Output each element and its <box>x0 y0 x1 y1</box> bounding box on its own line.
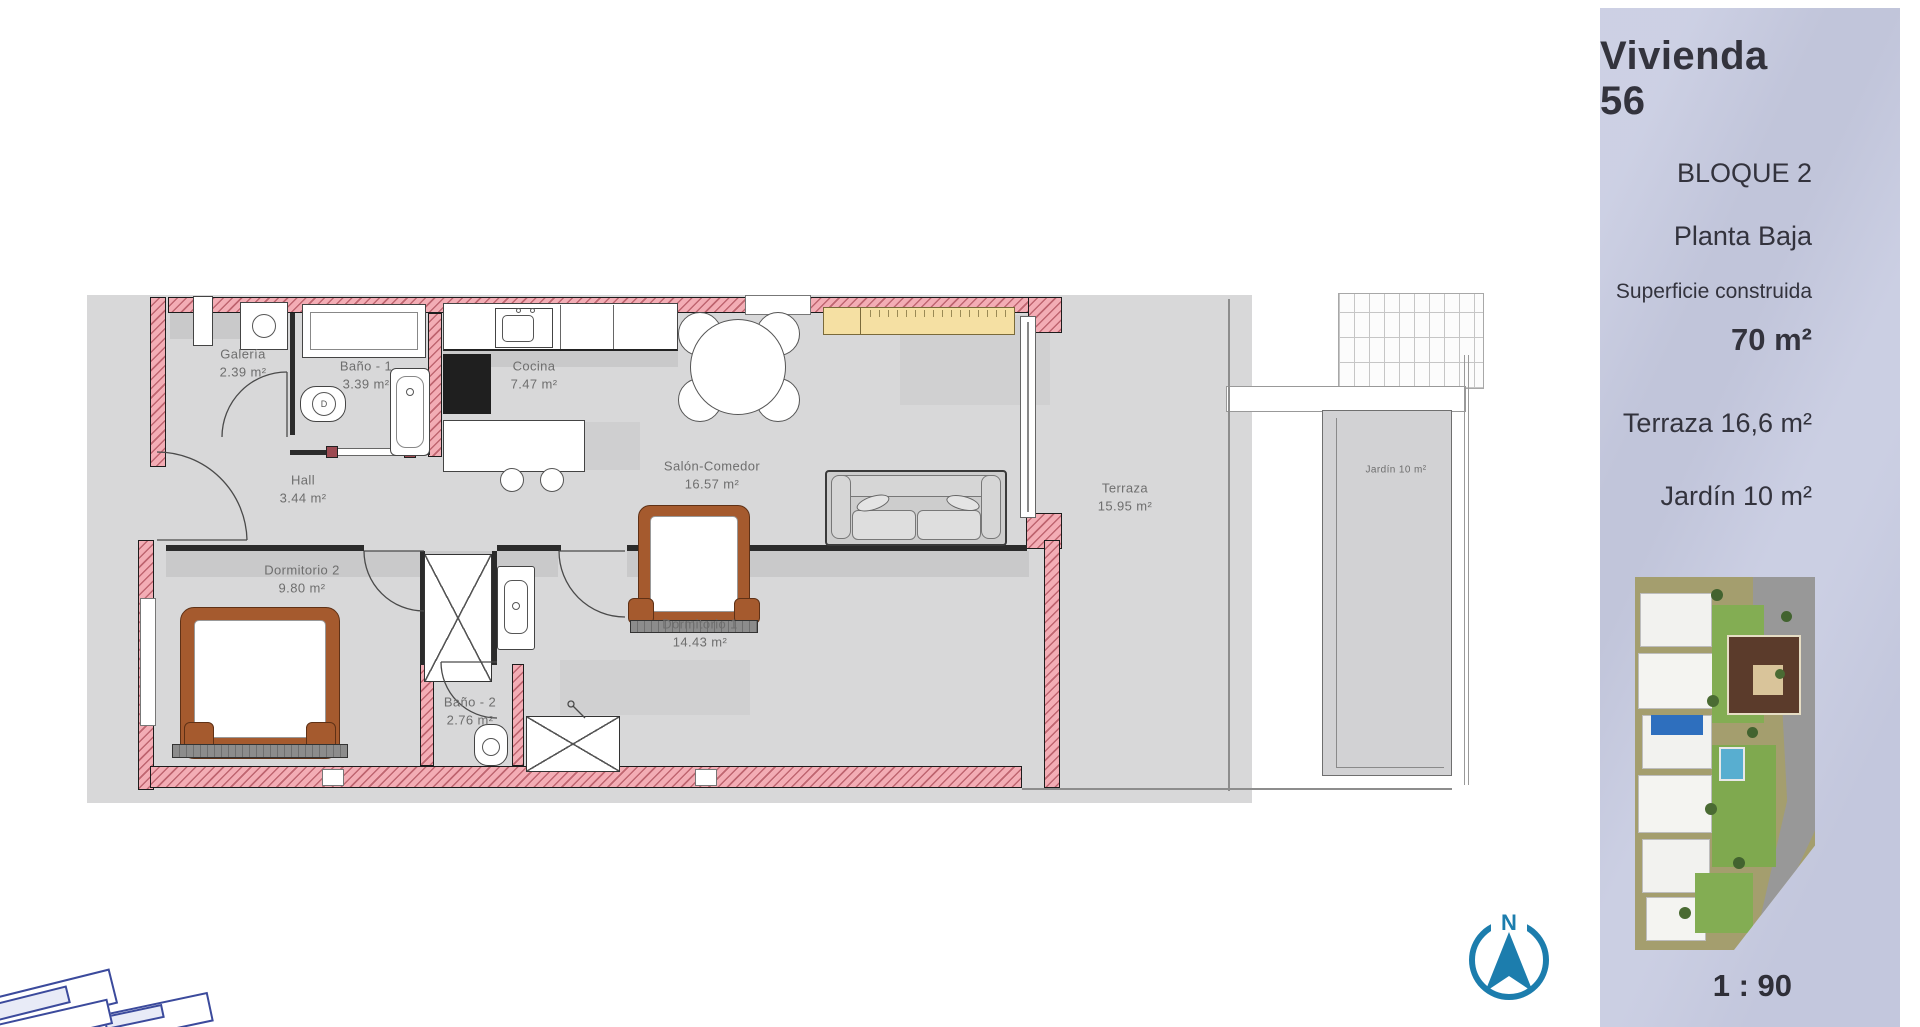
north-compass-icon: N <box>1462 910 1556 1004</box>
room-label-bano1: Baño - 1 3.39 m² <box>340 360 392 393</box>
room-area: 15.95 m² <box>1098 500 1153 515</box>
plan-sheet: D <box>0 0 1920 1027</box>
room-label-terraza: Terraza 15.95 m² <box>1098 482 1153 515</box>
site-tree <box>1733 857 1745 869</box>
north-arrow-icon <box>1485 932 1533 992</box>
room-name: Salón-Comedor <box>664 460 760 475</box>
room-area: 2.76 m² <box>447 714 494 729</box>
room-label-cocina: Cocina 7.47 m² <box>511 360 558 393</box>
adjacent-sheet-fragment <box>0 952 235 1027</box>
room-label-jardin: Jardín 10 m² <box>1366 464 1427 476</box>
site-lawn <box>1695 873 1753 933</box>
site-building <box>1640 593 1712 647</box>
room-name: Terraza <box>1102 482 1148 497</box>
room-label-hall: Hall 3.44 m² <box>280 474 327 507</box>
block-label: BLOQUE 2 <box>1677 158 1812 189</box>
unit-location-marker <box>1651 715 1703 735</box>
room-area: 9.80 m² <box>279 582 326 597</box>
room-name: Jardín 10 m² <box>1366 464 1427 476</box>
room-area: 7.47 m² <box>511 378 558 393</box>
boundary-double-line <box>1464 355 1469 785</box>
site-tree <box>1775 669 1785 679</box>
site-tree <box>1707 695 1719 707</box>
room-area: 3.44 m² <box>280 492 327 507</box>
unit-title: Vivienda 56 <box>1600 34 1812 124</box>
site-tree <box>1781 611 1792 622</box>
surface-value: 70 m² <box>1731 322 1812 358</box>
site-building <box>1638 775 1712 833</box>
north-compass: N <box>1462 910 1556 1004</box>
garden-wall-band <box>1226 386 1466 412</box>
room-label-bano2: Baño - 2 2.76 m² <box>444 696 496 729</box>
floor-label: Planta Baja <box>1674 221 1812 252</box>
garden-value: Jardín 10 m² <box>1660 481 1812 512</box>
room-label-galeria: Galería 2.39 m² <box>220 348 267 381</box>
room-name: Baño - 1 <box>340 360 392 375</box>
room-area: 2.39 m² <box>220 366 267 381</box>
scale-label: 1 : 90 <box>1713 968 1792 1004</box>
site-tree <box>1679 907 1691 919</box>
room-name: Dormitorio 1 <box>662 618 738 633</box>
room-label-salon: Salón-Comedor 16.57 m² <box>664 460 760 493</box>
room-area: 14.43 m² <box>673 636 728 651</box>
room-name: Dormitorio 2 <box>264 564 340 579</box>
room-area: 3.39 m² <box>343 378 390 393</box>
site-tree <box>1711 589 1723 601</box>
terrace-value: Terraza 16,6 m² <box>1623 408 1812 439</box>
room-label-dormitorio2: Dormitorio 2 9.80 m² <box>264 564 340 597</box>
garden-paving-tiles <box>1338 293 1484 389</box>
room-name: Baño - 2 <box>444 696 496 711</box>
room-name: Cocina <box>513 360 556 375</box>
room-area: 16.57 m² <box>685 478 740 493</box>
north-label: N <box>1501 910 1517 935</box>
site-tree <box>1705 803 1717 815</box>
surface-label: Superficie construida <box>1616 280 1812 304</box>
room-name: Galería <box>220 348 265 363</box>
site-pool <box>1719 747 1745 781</box>
site-tree <box>1747 727 1758 738</box>
room-label-dormitorio1: Dormitorio 1 14.43 m² <box>662 618 738 651</box>
site-building <box>1638 653 1714 709</box>
room-name: Hall <box>291 474 315 489</box>
